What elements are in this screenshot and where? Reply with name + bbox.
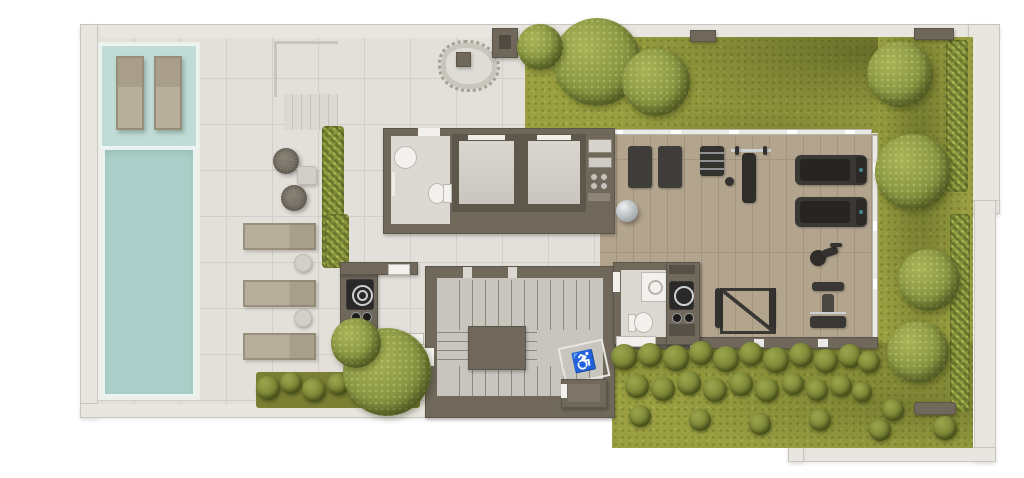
toilet-2-bowl: [634, 312, 653, 333]
bench-press-bench: [742, 153, 756, 203]
elevator-1-door: [468, 135, 505, 140]
right-wall-hedge-upper: [946, 40, 968, 192]
bbq-2-shelf-bottom: [669, 324, 695, 336]
bbq-2-burner-right: [684, 313, 694, 323]
grab-bar: [392, 172, 395, 196]
spin-bike-handlebar: [830, 243, 842, 247]
stair-wall-gap-1: [463, 267, 472, 278]
multi-gym-base: [810, 316, 846, 328]
dumbbell-on-floor: [725, 177, 734, 186]
wheelchair-icon: ♿: [570, 348, 598, 376]
bench-press-post-right: [763, 146, 767, 155]
in-water-lounger: [116, 56, 144, 130]
bbq-1-grill-center: [357, 290, 368, 301]
treadmill-1-belt: [800, 159, 850, 181]
vanity-2-basin: [648, 280, 663, 295]
right-wall-hedge-lower: [950, 214, 970, 412]
multi-gym-bar: [810, 312, 846, 314]
squat-rack: [720, 288, 776, 334]
garden-bottom: [612, 343, 973, 448]
bbq-1-sink: [388, 264, 410, 275]
round-side-table-2: [294, 309, 312, 327]
lounge-chair-2: [243, 280, 316, 307]
squat-rack-flange-right: [769, 288, 775, 328]
deck-planter-base: [256, 372, 420, 408]
exercise-mat-1: [628, 146, 652, 188]
bathroom-1-door: [418, 128, 440, 136]
toilet-1-tank: [443, 184, 452, 203]
round-side-table-1: [294, 254, 312, 272]
lounge-chair-1: [243, 223, 316, 250]
rooftop-floor-plan: ♿: [0, 0, 1024, 478]
stair-door: [424, 348, 434, 366]
top-wall-segment-1: [690, 30, 716, 42]
deck-curb-horizontal: [274, 41, 338, 44]
bbq-1-burner-left: [351, 312, 361, 322]
garden-bench: [914, 402, 956, 415]
elevator-1-cab: [459, 141, 514, 204]
lounge-chair-3: [243, 333, 316, 360]
outer-wall-bottom-right: [788, 447, 996, 462]
in-water-lounger: [154, 56, 182, 130]
deck-steps: [284, 94, 338, 130]
outer-wall-left: [80, 24, 98, 418]
kitchenette-tray-2: [588, 157, 612, 168]
stair-closet-floor: [568, 384, 600, 402]
square-side-table: [297, 166, 317, 185]
kitchenette-burners: [588, 172, 610, 190]
white-bench-deck: [382, 333, 424, 345]
bathroom-2-door: [613, 272, 620, 292]
top-wall-column-cap: [499, 35, 511, 49]
pouf-2: [281, 185, 307, 211]
gym-glass-wall-right: [872, 135, 878, 347]
stair-closet-door: [561, 384, 567, 398]
elevator-2-cab: [528, 141, 580, 204]
bbq-2-shelf-top: [669, 265, 695, 274]
stair-landing-core: [468, 326, 526, 370]
planter-tree-base: [456, 52, 471, 67]
sink-1: [394, 146, 417, 169]
outer-wall-right-lower: [974, 200, 996, 462]
treadmill-1-screen: [859, 168, 863, 172]
gym-glass-wall-top: [613, 129, 872, 135]
stair-wall-gap-2: [508, 267, 517, 278]
pool-tanning-ledge: [100, 44, 198, 148]
top-wall-segment-2: [914, 28, 954, 40]
white-bench-garden: [616, 336, 656, 347]
deck-hedge-south: [325, 214, 349, 268]
multi-gym-tower: [812, 282, 844, 291]
bench-press-post-left: [735, 146, 739, 155]
stability-ball: [616, 200, 638, 222]
bbq-2-burner-left: [672, 313, 682, 323]
squat-rack-flange-left: [715, 288, 721, 328]
pouf-1: [273, 148, 299, 174]
elevator-2-door: [537, 135, 571, 140]
multi-gym-seat: [822, 294, 834, 314]
exercise-mat-2: [658, 146, 682, 188]
kitchenette-shelf: [588, 193, 610, 201]
bbq-1-burner-right: [362, 312, 372, 322]
stair-flight-upper: [447, 280, 595, 330]
treadmill-2-belt: [800, 201, 850, 223]
deck-curb-vertical: [274, 41, 277, 97]
pool-water: [103, 148, 195, 396]
dumbbell-rack: [700, 146, 724, 176]
bbq-2-grill-ring: [674, 286, 694, 306]
gym-wall-bottom-mullions: [690, 339, 830, 347]
kitchenette-tray-1: [588, 139, 612, 153]
treadmill-2-screen: [859, 210, 863, 214]
